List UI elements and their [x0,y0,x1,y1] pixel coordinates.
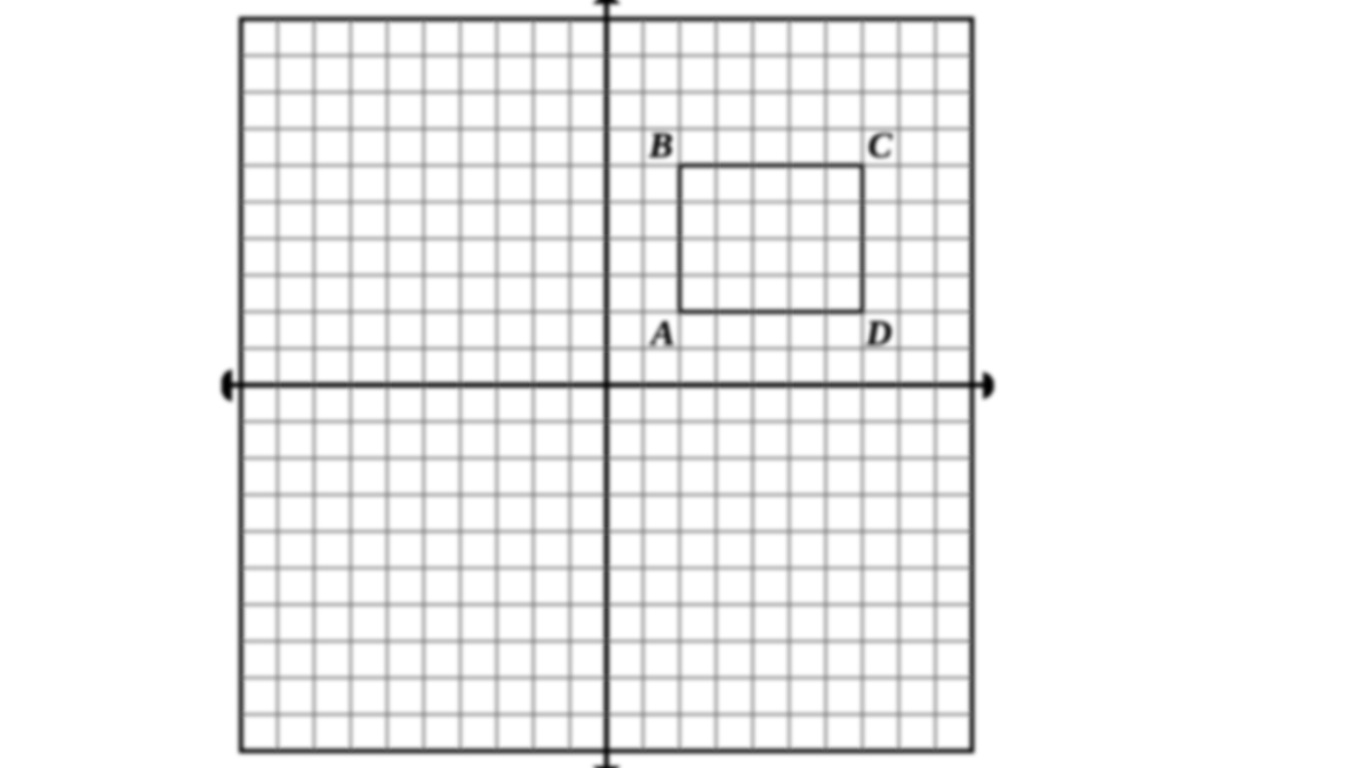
svg-text:C: C [868,125,893,165]
svg-text:D: D [865,313,892,353]
svg-text:B: B [648,125,673,165]
svg-text:A: A [649,313,675,353]
